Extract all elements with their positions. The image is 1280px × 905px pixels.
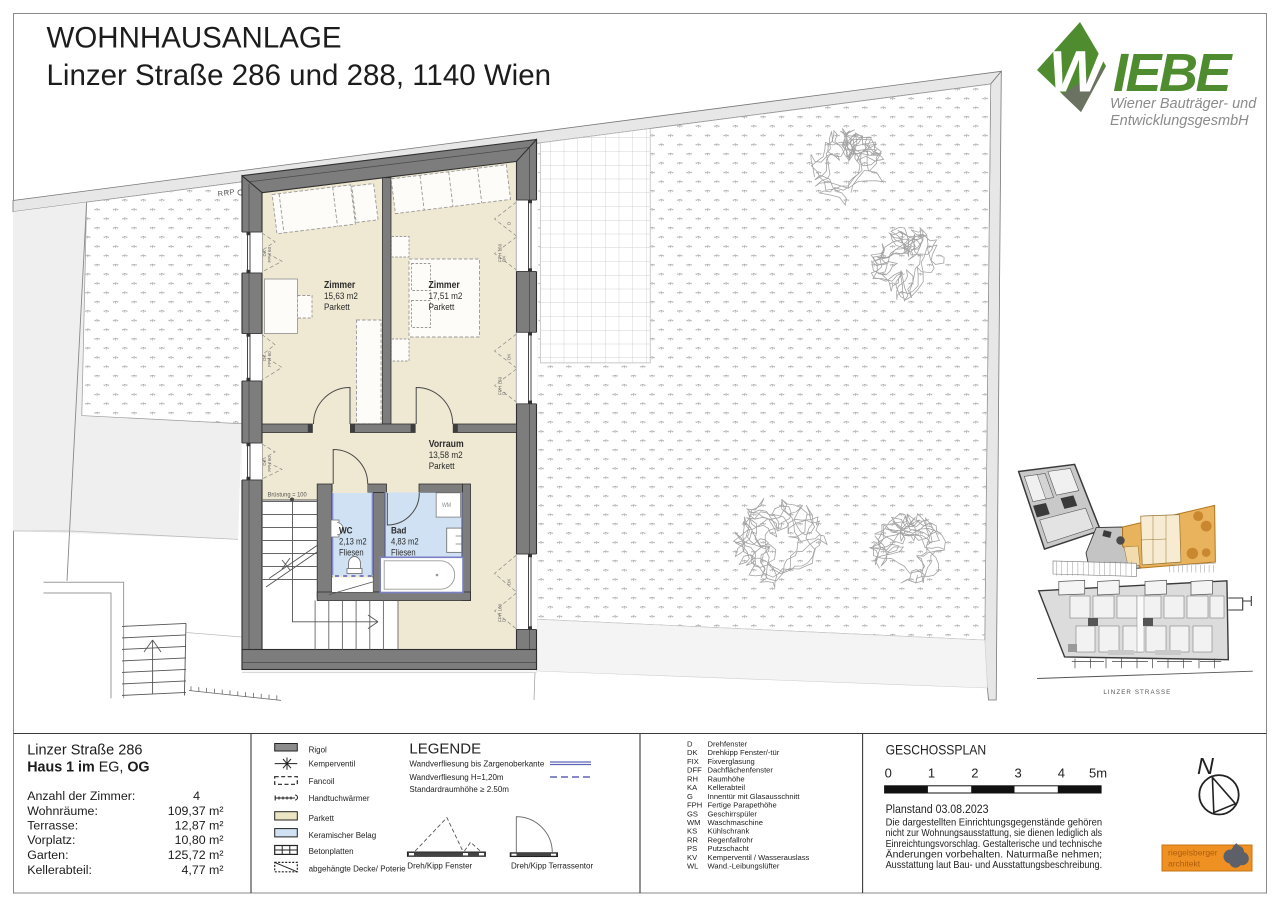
svg-text:Regenfallrohr: Regenfallrohr [708,835,754,844]
svg-text:Drehfenster: Drehfenster [708,740,748,749]
svg-text:Dachflächenfenster: Dachflächenfenster [708,766,774,775]
svg-text:12,87 m²: 12,87 m² [175,819,224,833]
svg-text:Haus 1 im EG, OG: Haus 1 im EG, OG [27,760,149,776]
svg-text:Die dargestellten Einrichtun: Die dargestellten Einrichtungsgegenständ… [886,817,1103,828]
svg-text:Drehkipp Fenster/-tür: Drehkipp Fenster/-tür [708,748,780,757]
svg-text:Vorplatz:: Vorplatz: [27,833,75,847]
svg-text:0: 0 [885,766,892,781]
svg-text:KV: KV [687,853,698,862]
svg-text:109,37 m²: 109,37 m² [168,804,224,818]
svg-text:LINZER STRASSE: LINZER STRASSE [1103,689,1171,696]
svg-text:LEGENDE: LEGENDE [409,741,481,758]
svg-text:4,77 m²: 4,77 m² [181,863,223,877]
svg-text:RH: RH [687,774,698,783]
svg-text:Brüstung = 100: Brüstung = 100 [268,491,308,498]
svg-text:4: 4 [193,789,200,803]
svg-text:G: G [687,792,693,801]
svg-text:Fertige Parapethöhe: Fertige Parapethöhe [708,801,777,810]
svg-text:2: 2 [971,766,978,781]
svg-text:WM: WM [687,818,701,827]
svg-text:15,63 m2: 15,63 m2 [324,290,358,301]
svg-text:Wand.-Leibungslüfter: Wand.-Leibungslüfter [708,862,780,871]
svg-text:13,58 m2: 13,58 m2 [429,449,463,460]
svg-text:Fliesen: Fliesen [339,547,364,558]
svg-text:DFF: DFF [687,766,702,775]
svg-text:Fixverglasung: Fixverglasung [708,757,755,766]
svg-text:Kemperventil / Wasserauslass: Kemperventil / Wasserauslass [708,853,810,862]
svg-text:Wandverfliesung bis Zargenober: Wandverfliesung bis Zargenoberkante [409,760,544,769]
svg-text:DK: DK [687,748,698,757]
svg-text:Putzschacht: Putzschacht [708,844,750,853]
svg-text:2,13 m2: 2,13 m2 [339,536,367,547]
svg-text:125,72 m²: 125,72 m² [168,848,224,862]
svg-text:Terrasse:: Terrasse: [27,819,78,833]
svg-text:Fliesen: Fliesen [391,547,416,558]
svg-text:DK: DK [507,578,512,585]
svg-text:Wiener Bauträger- und: Wiener Bauträger- und [1110,96,1257,112]
svg-text:GESCHOSSPLAN: GESCHOSSPLAN [886,742,987,758]
svg-text:Parkett: Parkett [429,301,455,312]
svg-text:Handtuchwärmer: Handtuchwärmer [309,794,370,803]
svg-text:FPH: FPH [687,801,702,810]
svg-text:3: 3 [1015,766,1022,781]
svg-text:Parkett: Parkett [429,460,455,471]
svg-text:IEBE: IEBE [1113,43,1234,103]
svg-text:W: W [1049,40,1108,105]
svg-text:Kemperventil: Kemperventil [309,760,356,769]
svg-text:Parkett: Parkett [324,301,350,312]
svg-text:FPH 60: FPH 60 [267,456,272,472]
svg-text:Parkett: Parkett [309,814,335,823]
svg-text:WM: WM [442,503,451,509]
svg-text:FPH 160: FPH 160 [498,603,503,622]
svg-text:FPH 60: FPH 60 [267,246,272,262]
svg-text:KA: KA [687,783,698,792]
svg-text:Wandverfliesung H=1,20m: Wandverfliesung H=1,20m [409,773,504,782]
svg-text:Einreichtungsvorschlag. Gesta: Einreichtungsvorschlag. Gestalterische u… [886,839,1103,850]
svg-text:Anzahl der Zimmer:: Anzahl der Zimmer: [27,789,135,803]
svg-text:Änderungen vorbehalten. Na: Änderungen vorbehalten. Naturmaße nehmen… [886,849,1103,861]
svg-text:Kellerabteil:: Kellerabteil: [27,863,92,877]
svg-text:Wohnräume:: Wohnräume: [27,804,98,818]
svg-text:FPH 60: FPH 60 [267,351,272,367]
svg-text:Kühlschrank: Kühlschrank [708,827,750,836]
svg-text:nicht zur Wohnungsausstattung,: nicht zur Wohnungsausstattung, sie diene… [886,828,1103,839]
svg-text:5m: 5m [1089,766,1107,781]
svg-text:Standardraumhöhe ≥ 2.50m: Standardraumhöhe ≥ 2.50m [409,785,509,794]
svg-text:Ausstattung laut Bau- und Auss: Ausstattung laut Bau- und Ausstattungsbe… [886,860,1103,871]
svg-text:Planstand 03.08.2023: Planstand 03.08.2023 [886,803,989,816]
svg-text:FPH 150: FPH 150 [498,243,503,262]
svg-text:4,83 m2: 4,83 m2 [391,536,419,547]
svg-text:WOHNHAUSANLAGE: WOHNHAUSANLAGE [47,22,342,55]
svg-text:Dreh/Kipp Fenster: Dreh/Kipp Fenster [407,862,472,871]
svg-text:D: D [687,740,693,749]
svg-text:FIX: FIX [687,757,699,766]
svg-text:Kellerabteil: Kellerabteil [708,783,746,792]
svg-text:abgehängte Decke/ Poterie: abgehängte Decke/ Poterie [309,865,407,874]
svg-text:Geschirrspüler: Geschirrspüler [708,809,758,818]
svg-text:architekt: architekt [1168,859,1201,869]
svg-text:DK: DK [507,353,512,360]
svg-text:17,51 m2: 17,51 m2 [429,290,463,301]
svg-text:10,80 m²: 10,80 m² [175,833,224,847]
svg-text:Betonplatten: Betonplatten [309,847,354,856]
svg-text:Bad: Bad [391,525,406,536]
svg-text:1: 1 [928,766,935,781]
svg-text:Rigol: Rigol [309,746,327,755]
svg-text:Garten:: Garten: [27,848,68,862]
svg-text:WC: WC [339,525,353,536]
svg-text:GS: GS [687,809,698,818]
svg-text:Linzer Straße 286: Linzer Straße 286 [27,743,142,759]
svg-text:Fancoil: Fancoil [309,777,335,786]
svg-text:N: N [1197,753,1214,779]
svg-text:Linzer Straße 286 und 288, 114: Linzer Straße 286 und 288, 1140 Wien [47,59,552,92]
svg-text:Innentür mit Glasausschnitt: Innentür mit Glasausschnitt [708,792,801,801]
svg-text:Waschmaschine: Waschmaschine [708,818,763,827]
svg-text:Raumhöhe: Raumhöhe [708,774,745,783]
svg-text:riegelsberger: riegelsberger [1168,848,1218,858]
svg-text:WL: WL [687,862,698,871]
svg-text:4: 4 [1058,766,1065,781]
svg-text:PS: PS [687,844,697,853]
svg-text:FPH 150: FPH 150 [498,376,503,395]
svg-text:KS: KS [687,827,697,836]
svg-text:RR: RR [687,835,698,844]
svg-text:Dreh/Kipp Terrassentor: Dreh/Kipp Terrassentor [511,862,593,871]
svg-text:EntwicklungsgesmbH: EntwicklungsgesmbH [1110,113,1249,129]
svg-text:Keramischer Belag: Keramischer Belag [309,831,377,840]
